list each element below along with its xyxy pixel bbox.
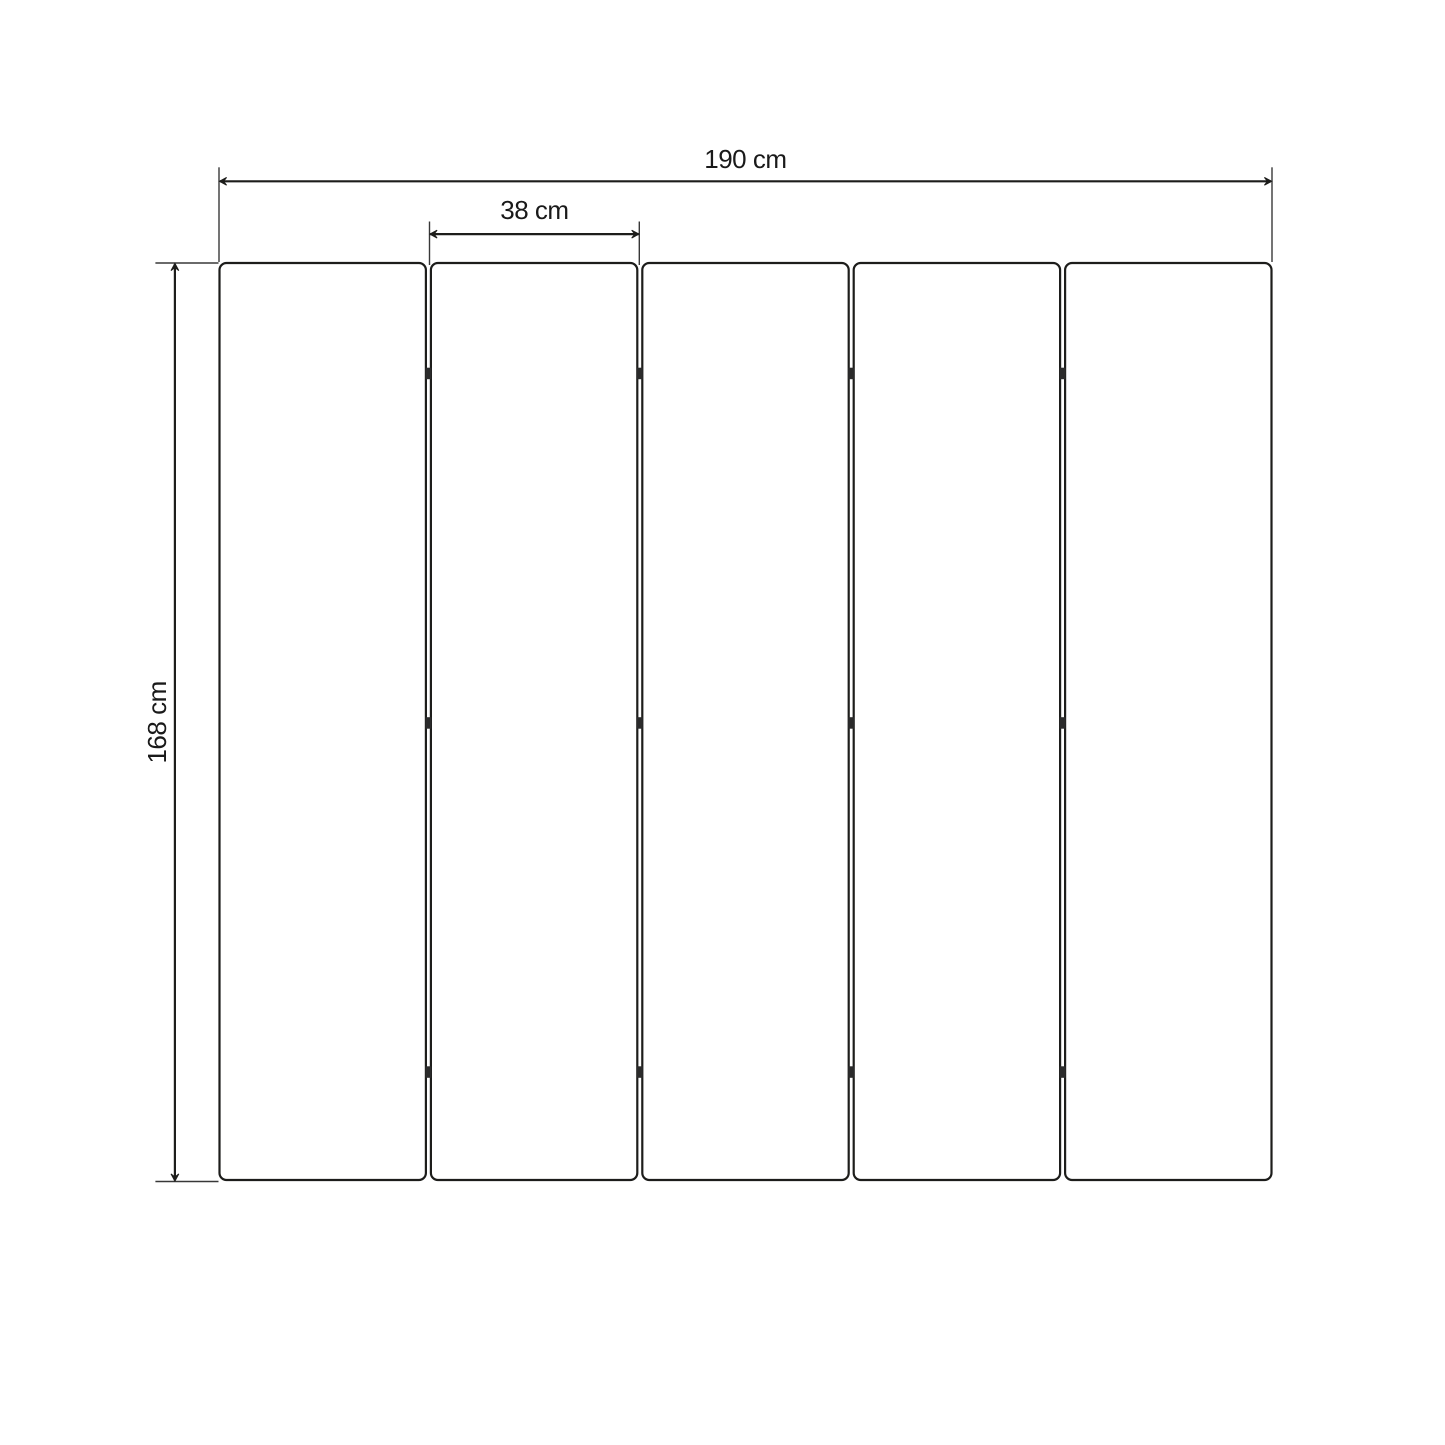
svg-text:38 cm: 38 cm — [500, 195, 568, 225]
svg-text:168 cm: 168 cm — [142, 681, 172, 763]
svg-text:190 cm: 190 cm — [704, 144, 786, 174]
